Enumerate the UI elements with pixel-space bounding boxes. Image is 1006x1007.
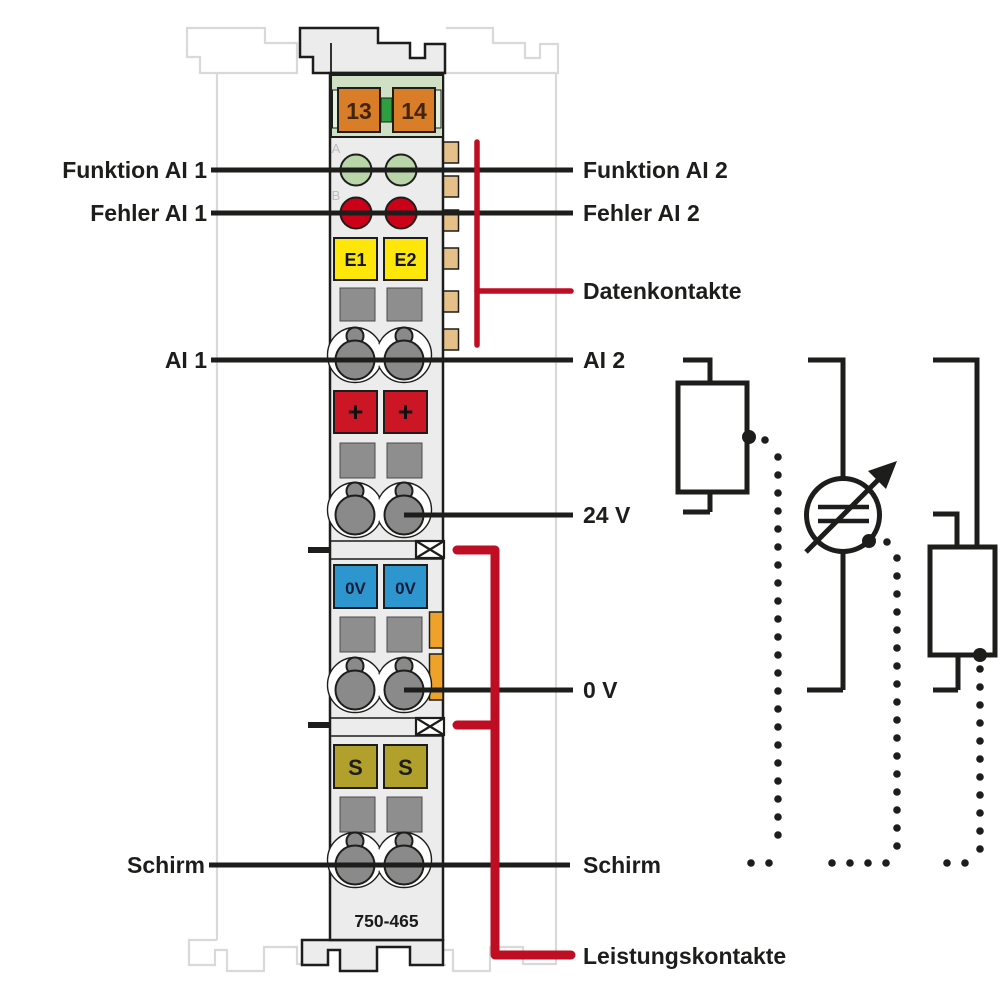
power-contact-symbol-2 — [416, 718, 444, 735]
data-contact-tabs — [444, 142, 459, 350]
e2-label: E2 — [394, 250, 416, 270]
leistungskontakte-line — [457, 550, 571, 955]
shield2-label: S — [398, 755, 413, 780]
shield-dotted-lines — [747, 436, 984, 867]
sensor-symbol-left — [678, 360, 756, 512]
zerovolt2-label: 0V — [395, 579, 416, 598]
contact-lines — [457, 142, 571, 955]
plus2-label: + — [398, 397, 414, 427]
module-top-cap — [300, 28, 445, 73]
label-24v: 24 V — [583, 502, 631, 528]
power-contact-symbol-1 — [416, 541, 444, 558]
label-fehler-ai2: Fehler AI 2 — [583, 200, 700, 226]
label-ai1: AI 1 — [165, 347, 207, 373]
shield1-label: S — [348, 755, 363, 780]
e1-label: E1 — [344, 250, 366, 270]
current-source-symbol — [806, 360, 897, 690]
module-bottom-foot — [302, 940, 443, 971]
label-schirm-right: Schirm — [583, 852, 661, 878]
label-datenkontakte: Datenkontakte — [583, 278, 741, 304]
jumper-contact-2 — [430, 654, 444, 700]
jumper-contact-1 — [430, 612, 444, 648]
svg-text:B: B — [332, 188, 341, 203]
label-fehler-ai1: Fehler AI 1 — [90, 200, 207, 226]
label-0v: 0 V — [583, 677, 618, 703]
label-funktion-ai1: Funktion AI 1 — [62, 157, 207, 183]
bus-terminal-13-label: 13 — [346, 98, 372, 124]
zerovolt1-label: 0V — [345, 579, 366, 598]
wiring-diagram: 13 14 A B C D E1 E2 — [0, 0, 1006, 1007]
power-contact-tick-left-1 — [308, 547, 330, 553]
module-id: 750-465 — [354, 911, 418, 931]
label-schirm-left: Schirm — [127, 852, 205, 878]
bus-terminal-14-label: 14 — [401, 98, 427, 124]
label-funktion-ai2: Funktion AI 2 — [583, 157, 728, 183]
diagram-canvas: 13 14 A B C D E1 E2 — [0, 0, 1006, 1007]
transducer-symbol-right — [930, 360, 995, 690]
svg-text:A: A — [332, 141, 341, 156]
label-leistungskontakte: Leistungskontakte — [583, 943, 786, 969]
power-contact-tick-left-2 — [308, 722, 330, 728]
label-ai2: AI 2 — [583, 347, 625, 373]
plus1-label: + — [348, 397, 364, 427]
